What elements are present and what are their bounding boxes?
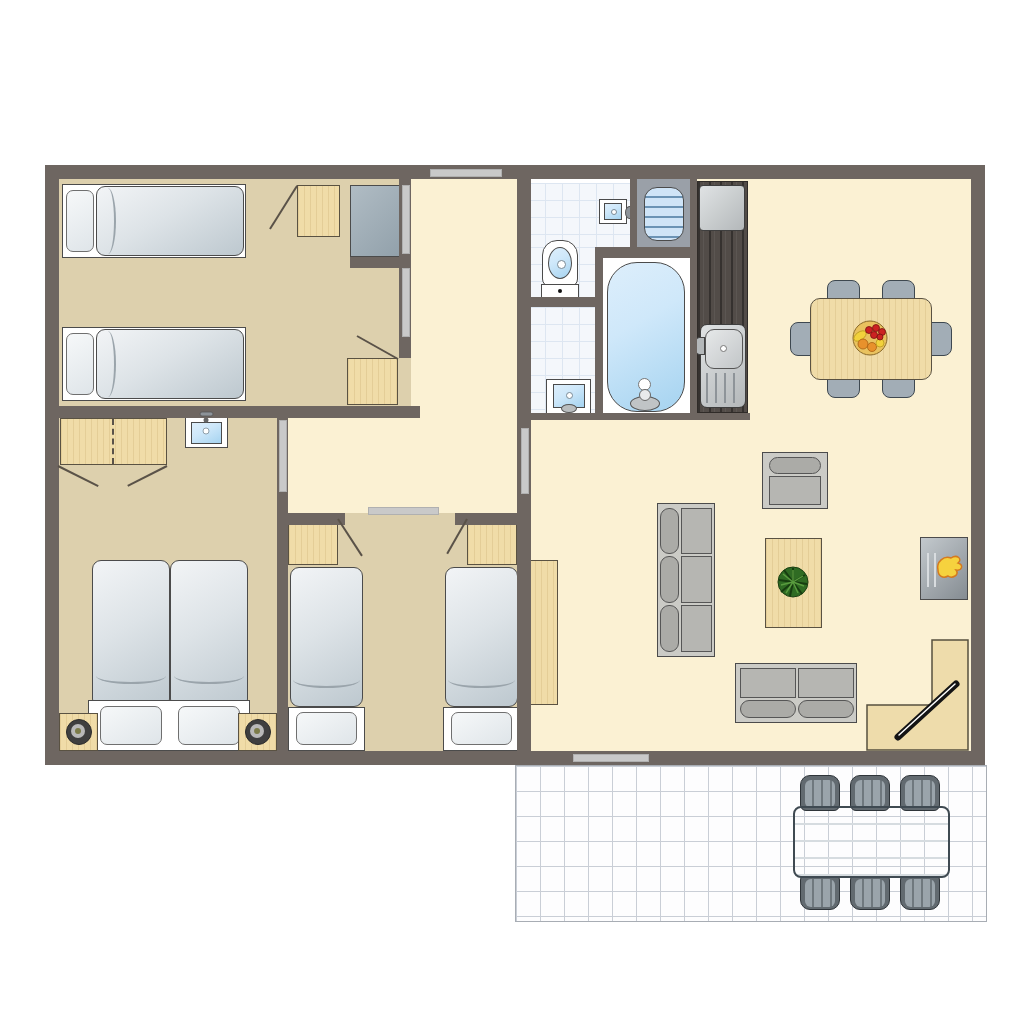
wardrobe-gray [350, 185, 400, 257]
blanket-line [174, 668, 244, 684]
floor-plan [0, 0, 1024, 1024]
outdoor-chair-seat [905, 879, 935, 907]
outdoor-chair [850, 874, 890, 910]
wall-bathtub-left [595, 258, 603, 415]
hand-basin-drain [611, 209, 617, 215]
sofa-back-cushion [660, 556, 679, 603]
double-bed-mattress [92, 560, 170, 708]
door-bar [279, 420, 287, 492]
outdoor-chair [900, 874, 940, 910]
outdoor-chair-seat [805, 879, 835, 907]
mattress [96, 186, 244, 256]
wall-bedroom-top-bottom [45, 406, 420, 418]
outdoor-chair [800, 874, 840, 910]
armchair-seat [769, 476, 821, 505]
wall-bathtub-top [595, 247, 690, 258]
pillow [66, 190, 94, 252]
blanket-line [100, 188, 116, 254]
sofa-seat [740, 668, 796, 698]
pillow [296, 712, 357, 745]
wall-kitchen-left [690, 179, 697, 420]
sofa-back-cushion [660, 605, 679, 652]
sofa-back-cushion [740, 700, 796, 718]
door-bar [368, 507, 439, 515]
wall-outer-top [45, 165, 985, 179]
sofa-seat [681, 556, 712, 603]
bedside-lamp-center [75, 728, 81, 734]
bedside-lamp-center [254, 728, 260, 734]
hob [699, 185, 745, 231]
washbasin-bowl [191, 422, 222, 444]
terrace-door-bar [573, 754, 649, 762]
sink-drainer-lines [706, 373, 740, 403]
nightstand [347, 358, 398, 405]
tall-cabinet [528, 560, 558, 705]
wall-bath-divider [517, 297, 600, 307]
wardrobe [467, 518, 517, 565]
outdoor-chair-seat [905, 780, 935, 808]
wall-bathroom-bottom [517, 413, 750, 420]
door-bar [402, 268, 410, 337]
toilet-button [558, 289, 562, 293]
coffee-table [765, 538, 822, 628]
pillow [451, 712, 512, 745]
bathtub-faucet-knob [639, 389, 651, 401]
washbasin-drain [566, 392, 573, 399]
toilet-drain [557, 260, 566, 269]
door-bar [521, 428, 529, 494]
sink-drain [720, 345, 727, 352]
wall-outer-left [45, 165, 59, 765]
wardrobe-split-line [112, 419, 114, 464]
dining-table [810, 298, 932, 380]
sofa-back-cushion [660, 508, 679, 554]
front-door-bar [430, 169, 502, 177]
wardrobe [288, 518, 338, 565]
pillow [178, 706, 240, 745]
outdoor-table [793, 806, 950, 878]
fireplace-line [934, 553, 936, 587]
blanket-line [448, 672, 515, 688]
armchair-back [769, 457, 821, 474]
fireplace-line [927, 553, 929, 587]
sofa-seat [798, 668, 854, 698]
blanket-line [293, 672, 360, 688]
outdoor-chair-seat [855, 879, 885, 907]
sofa-back-cushion [798, 700, 854, 718]
wall-stub [350, 257, 411, 268]
door-bar [402, 185, 410, 254]
outdoor-chair-seat [855, 780, 885, 808]
pillow [100, 706, 162, 745]
faucet-icon [561, 404, 577, 413]
wall-outer-right [971, 165, 985, 765]
pillow [66, 333, 94, 395]
sofa-seat [681, 508, 712, 554]
radiator [644, 187, 684, 241]
outdoor-chair-seat [805, 780, 835, 808]
mattress [96, 329, 244, 399]
nightstand [297, 185, 340, 237]
sofa-seat [681, 605, 712, 652]
blanket-line [100, 331, 116, 397]
wall-niche-left [630, 179, 637, 247]
double-bed-mattress [170, 560, 248, 708]
blanket-line [96, 668, 166, 684]
wall-outer-bottom [45, 751, 985, 765]
